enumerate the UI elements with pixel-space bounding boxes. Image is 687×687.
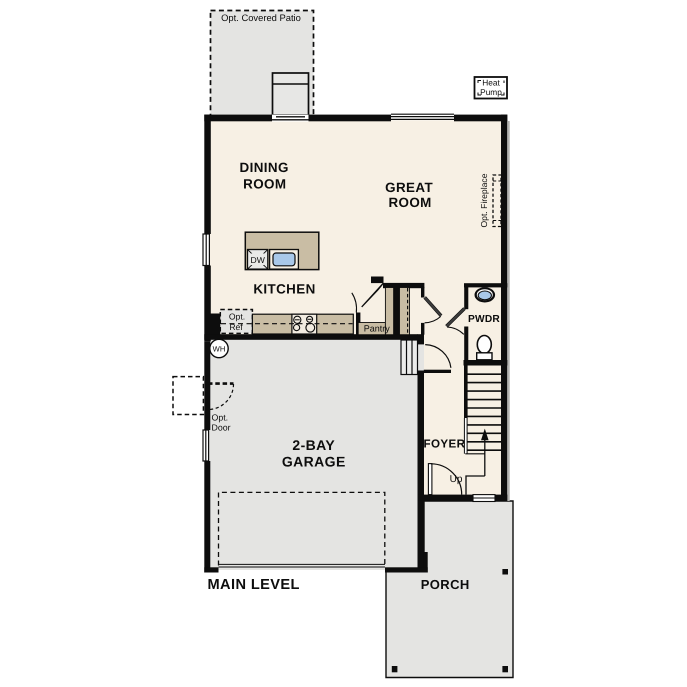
svg-text:Pump: Pump — [480, 87, 502, 97]
svg-text:ROOM: ROOM — [388, 195, 431, 210]
svg-text:Opt.: Opt. — [229, 312, 245, 322]
svg-text:ROOM: ROOM — [243, 176, 286, 191]
svg-text:PORCH: PORCH — [421, 577, 470, 592]
svg-text:DW: DW — [251, 255, 266, 265]
svg-text:Opt.: Opt. — [212, 413, 229, 423]
svg-text:KITCHEN: KITCHEN — [253, 281, 315, 296]
svg-text:Heat: Heat — [482, 78, 500, 88]
svg-text:GARAGE: GARAGE — [282, 454, 346, 470]
svg-text:Pantry: Pantry — [364, 324, 391, 334]
svg-text:Door: Door — [212, 423, 231, 433]
svg-text:MAIN LEVEL: MAIN LEVEL — [208, 577, 300, 593]
svg-text:2-BAY: 2-BAY — [292, 437, 335, 453]
svg-text:Up: Up — [450, 474, 463, 485]
svg-text:PWDR: PWDR — [468, 314, 500, 325]
svg-text:WH: WH — [213, 345, 226, 354]
svg-text:GREAT: GREAT — [385, 180, 433, 195]
svg-text:FOYER: FOYER — [424, 437, 466, 450]
svg-text:Opt. Covered Patio: Opt. Covered Patio — [221, 12, 301, 23]
svg-text:DINING: DINING — [240, 160, 289, 175]
svg-text:Opt. Fireplace: Opt. Fireplace — [479, 173, 489, 227]
